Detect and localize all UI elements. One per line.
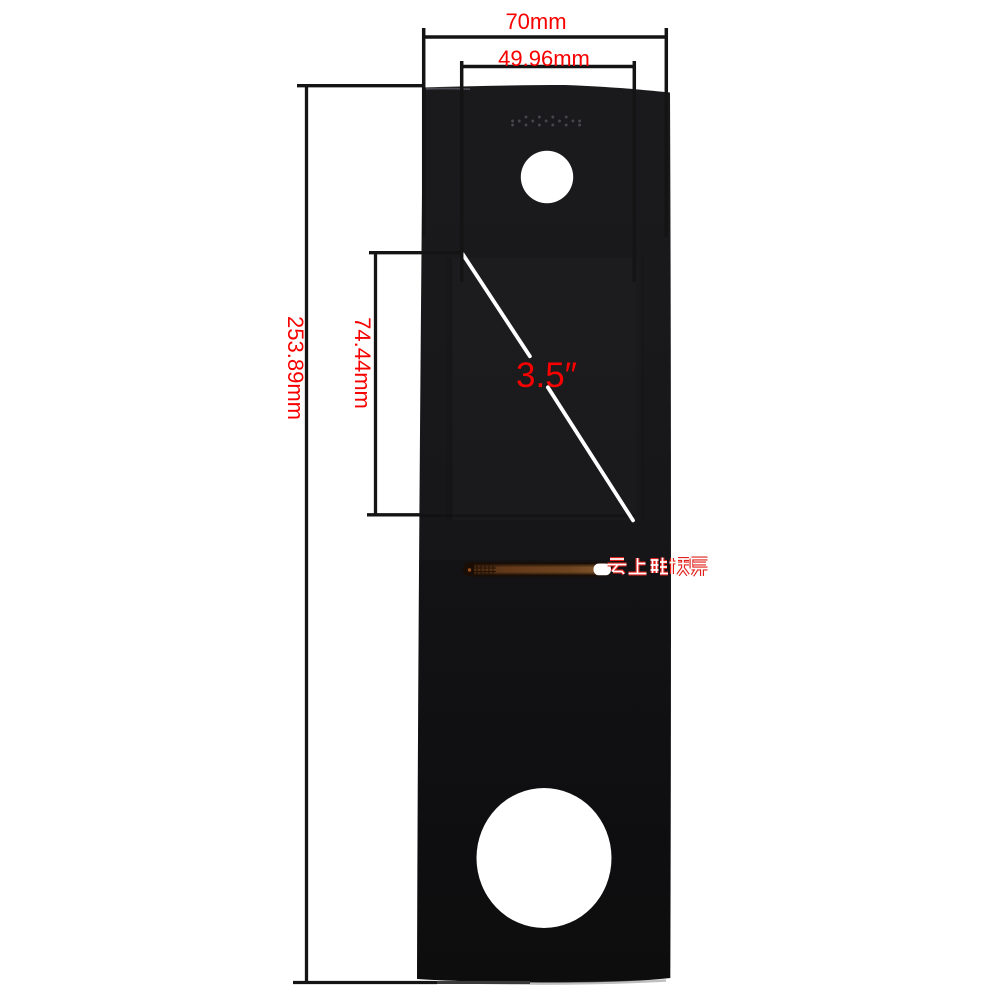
svg-text:253.89mm: 253.89mm <box>283 316 308 420</box>
svg-text:3.5″: 3.5″ <box>516 356 577 395</box>
svg-text:74.44mm: 74.44mm <box>350 317 375 409</box>
svg-text:49.96mm: 49.96mm <box>498 46 590 71</box>
svg-text:70mm: 70mm <box>505 9 566 34</box>
